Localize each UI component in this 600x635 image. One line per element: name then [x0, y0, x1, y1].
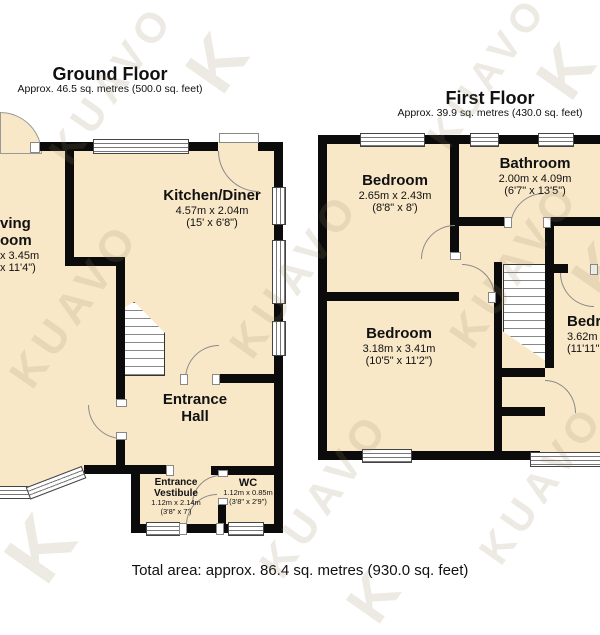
wall: [502, 407, 545, 416]
room-dims: 3.18m x 3.41m: [330, 343, 468, 355]
room-dims: (3'8" x 7'): [139, 508, 213, 516]
wall: [218, 374, 274, 383]
room-label-entrance-vestibule: Entrance Vestibule 1.12m x 2.14m (3'8" x…: [139, 477, 213, 516]
room-dims: (3'8" x 2'9"): [222, 498, 274, 506]
door-jamb: [179, 523, 187, 535]
room-dims: x 11'4"): [0, 262, 70, 274]
wall: [450, 217, 510, 226]
door-frame: [219, 133, 259, 143]
room-name: Bedr: [567, 314, 600, 331]
room-dims: 3.62m x: [567, 331, 600, 343]
door-jamb: [116, 399, 127, 407]
room-dims: x 3.45m: [0, 250, 70, 262]
door-jamb: [116, 432, 127, 440]
wall: [318, 135, 327, 460]
room-dims: (10'5" x 11'2"): [330, 355, 468, 367]
window: [228, 522, 264, 536]
wall: [84, 465, 170, 474]
door-opening: [218, 142, 258, 151]
wall: [327, 292, 459, 301]
first-floor-subtitle: Approx. 39.9 sq. metres (430.0 sq. feet): [380, 108, 600, 120]
wall: [116, 438, 125, 470]
door-jamb: [180, 374, 188, 385]
window: [146, 522, 180, 536]
room-dims: (11'11": [567, 343, 600, 355]
room-name: ving: [0, 216, 70, 233]
room-name: Bathroom: [470, 156, 600, 173]
door-jamb: [166, 465, 174, 476]
window: [93, 139, 189, 154]
floorplan-canvas: Ground Floor Approx. 46.5 sq. metres (50…: [0, 0, 600, 600]
room-label-wc: WC 1.12m x 0.85m (3'8" x 2'9"): [222, 477, 274, 506]
room-label-living-room: ving oom x 3.45m x 11'4"): [0, 216, 70, 274]
room-name: Entrance: [139, 477, 213, 488]
window: [360, 133, 425, 147]
room-label-entrance-hall: Entrance Hall: [135, 392, 255, 426]
room-name: Entrance: [135, 392, 255, 409]
door-jamb: [212, 374, 220, 385]
door-jamb: [218, 470, 228, 477]
door-leaf: [30, 142, 40, 153]
wall: [502, 368, 545, 377]
room-dims: 4.57m x 2.04m: [132, 205, 292, 217]
room-dims: (15' x 6'8"): [132, 217, 292, 229]
room-label-kitchen-diner: Kitchen/Diner 4.57m x 2.04m (15' x 6'8"): [132, 188, 292, 229]
door-jamb: [450, 252, 461, 260]
room-name: Hall: [135, 409, 255, 426]
room-label-bedroom-3: Bedr 3.62m x (11'11": [567, 314, 600, 355]
door-jamb: [216, 523, 224, 535]
room-name: Kitchen/Diner: [132, 188, 292, 205]
room-dims: 2.00m x 4.09m: [470, 173, 600, 185]
window: [538, 133, 574, 147]
room-name: oom: [0, 233, 70, 250]
room-name: Bedroom: [332, 173, 458, 190]
window: [470, 133, 499, 147]
